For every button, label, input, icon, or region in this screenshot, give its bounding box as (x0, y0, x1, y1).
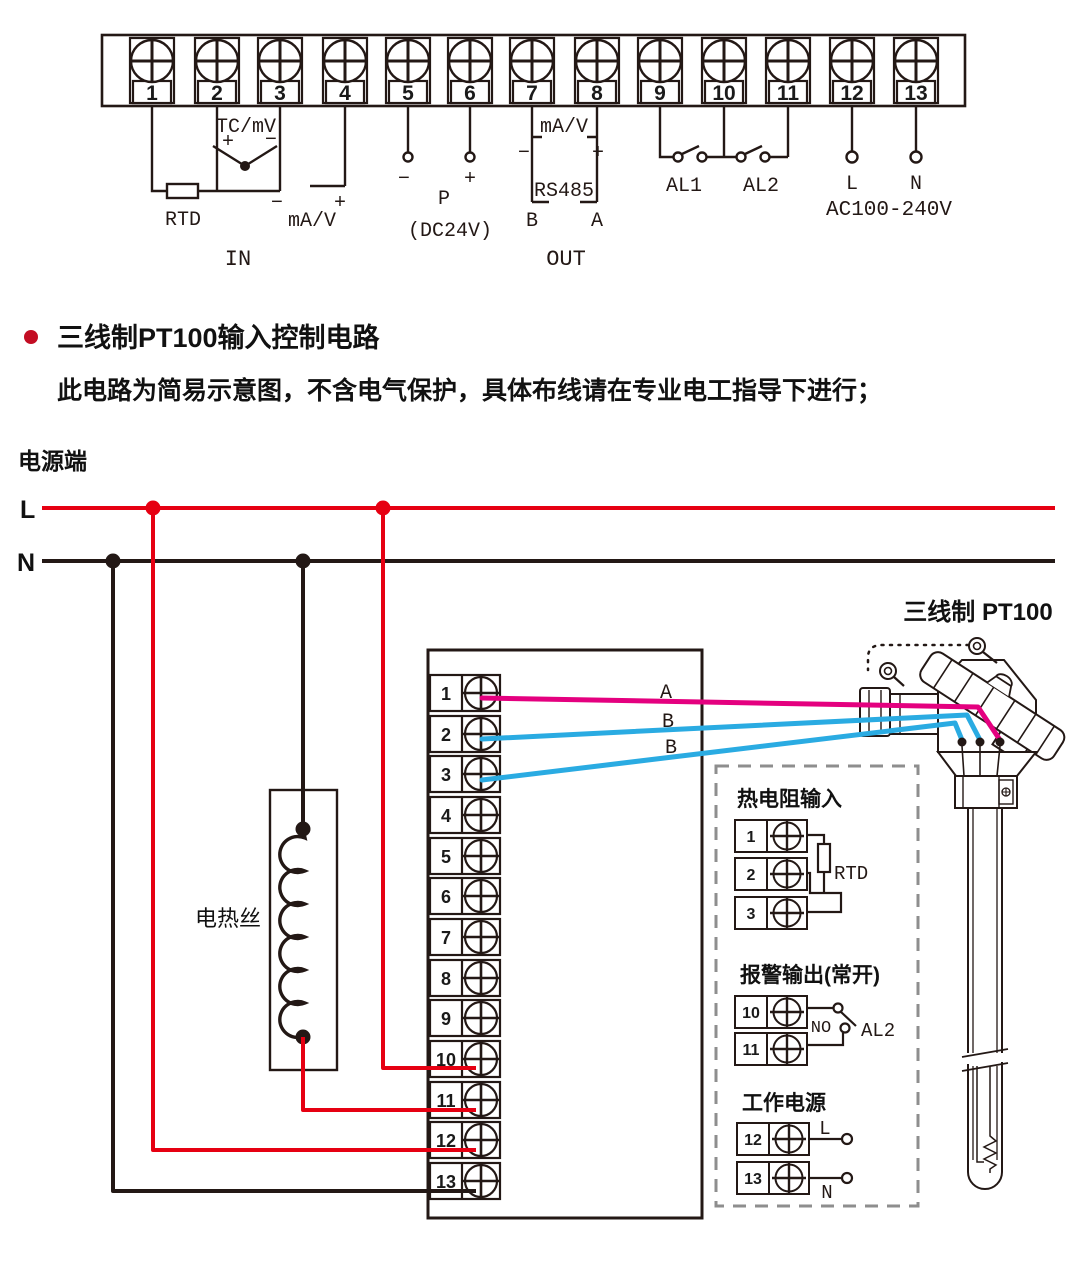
rs485-label: RS485 (534, 180, 594, 203)
rtd-section-title: 热电阻输入 (737, 787, 842, 811)
open-terminal-dot (466, 153, 475, 162)
open-terminal-dot (404, 153, 413, 162)
terminal-number: 4 (339, 82, 351, 105)
minus-sign: − (271, 192, 283, 215)
plus-sign: + (222, 131, 234, 154)
terminal-number: 6 (441, 887, 451, 907)
minus-sign: − (398, 168, 410, 191)
terminal-number: 9 (654, 82, 666, 105)
terminal-number: 13 (904, 82, 927, 105)
working-power-section: 工作电源 12 13 L N (737, 1091, 852, 1204)
ac-range-label: AC100-240V (826, 199, 952, 222)
open-terminal-dot (911, 152, 922, 163)
switch-contact (761, 153, 770, 162)
terminal-number: 6 (464, 82, 476, 105)
probe-element-zigzag (977, 1066, 996, 1173)
rtd-label: RTD (834, 863, 868, 885)
terminal-number: 2 (211, 82, 223, 105)
in-label: IN (225, 247, 251, 272)
ma-v-in-label: mA/V (288, 210, 336, 233)
sensor-neck-funnel (938, 752, 1036, 776)
terminal-number: 5 (402, 82, 414, 105)
terminal-detail-box: 热电阻输入 1 2 3 RTD 报警输出(常开) 10 11 NO AL2 (716, 766, 918, 1206)
terminal-number: 3 (441, 765, 451, 785)
section-note: 此电路为简易示意图，不含电气保护，具体布线请在专业电工指导下进行； (57, 376, 882, 405)
plus-sign: + (464, 168, 476, 191)
rs485-a-label: A (591, 210, 603, 233)
wire-b2-label: B (665, 737, 677, 760)
terminal-number: 1 (747, 829, 756, 846)
terminal-number: 5 (441, 847, 451, 867)
terminal-number: 8 (441, 969, 451, 989)
alarm-section-title: 报警输出(常开) (740, 963, 880, 987)
head-terminal-dot (958, 738, 967, 747)
sensor-neck (955, 776, 1017, 808)
minus-sign: − (265, 129, 277, 152)
power-rails: 电源端 L N (17, 448, 1055, 577)
terminal-number: 8 (591, 82, 603, 105)
terminal-number: 11 (743, 1042, 760, 1059)
terminal-number: 7 (526, 82, 538, 105)
dc24v-label: (DC24V) (408, 220, 492, 243)
sensor-probe-tube (962, 808, 1008, 1189)
rtd-input-section: 热电阻输入 1 2 3 RTD (735, 787, 868, 929)
pt100-sensor: 三线制 PT100 (860, 599, 1076, 1189)
rs485-b-label: B (526, 210, 538, 233)
n-wire-to-terminal-13 (113, 561, 476, 1191)
minus-sign: − (518, 142, 530, 165)
al2-label: AL2 (743, 175, 779, 198)
wiring-diagram: 1 2 3 4 5 6 7 8 9 10 11 12 13 (0, 0, 1080, 1286)
switch-contact (737, 153, 746, 162)
switch-contact (698, 153, 707, 162)
detail-l-label: L (819, 1118, 830, 1140)
section-title: 三线制PT100输入控制电路 (57, 322, 381, 353)
no-contact-label: NO (811, 1019, 831, 1038)
out-label: OUT (546, 247, 586, 272)
line-n-label: N (17, 549, 35, 577)
terminal-number: 10 (742, 1005, 760, 1022)
terminal-number: 10 (712, 82, 735, 105)
switch-contact (674, 153, 683, 162)
terminal-number: 11 (777, 82, 800, 105)
section-heading: 三线制PT100输入控制电路 此电路为简易示意图，不含电气保护，具体布线请在专业… (24, 322, 882, 405)
line-l-label: L (20, 496, 35, 524)
al1-label: AL1 (666, 175, 702, 198)
power-section-title: 工作电源 (742, 1091, 826, 1115)
power-terminal-label: 电源端 (18, 448, 87, 474)
power-wiring (113, 508, 476, 1191)
terminal-number: 2 (441, 725, 451, 745)
switch-blades (682, 146, 762, 154)
terminal-number: 13 (744, 1171, 762, 1188)
heater-label: 电热丝 (195, 906, 261, 931)
terminal-number: 1 (146, 82, 158, 105)
heater: 电热丝 (195, 561, 337, 1070)
top-annotation-labels: TC/mV + − RTD − mA/V + IN − + P (DC24V) … (165, 116, 952, 272)
terminal-number: 3 (747, 906, 756, 923)
alarm-output-section: 报警输出(常开) 10 11 NO AL2 (735, 963, 895, 1065)
rtd-resistor-symbol (167, 184, 198, 198)
n-label: N (910, 173, 922, 196)
al2-label: AL2 (861, 1020, 895, 1042)
terminal-number: 9 (441, 1009, 451, 1029)
plus-sign: + (334, 192, 346, 215)
open-terminal-dot (847, 152, 858, 163)
terminal-number: 4 (441, 806, 451, 826)
rtd-label: RTD (165, 209, 201, 232)
wire-b1-label: B (662, 711, 674, 734)
junction-dot (240, 161, 250, 171)
sensor-label: 三线制 PT100 (903, 599, 1052, 626)
terminal-number: 2 (747, 867, 756, 884)
plus-sign: + (592, 142, 604, 165)
heater-coil (280, 829, 305, 1038)
rtd-resistor-symbol (818, 844, 830, 872)
l-label: L (846, 173, 858, 196)
top-terminal-block: 1 2 3 4 5 6 7 8 9 10 11 12 13 (102, 35, 965, 272)
terminal-number: 1 (441, 684, 451, 704)
terminal-number: 3 (274, 82, 286, 105)
bullet-icon (24, 330, 38, 344)
ma-v-out-label: mA/V (540, 116, 588, 139)
terminal-number: 12 (744, 1132, 762, 1149)
head-terminal-dot (996, 738, 1005, 747)
p-label: P (438, 188, 450, 211)
detail-n-label: N (821, 1182, 832, 1204)
terminal-number: 7 (441, 928, 451, 948)
wire-a-label: A (660, 682, 672, 705)
terminal-number: 12 (840, 82, 863, 105)
coil-top-dot (296, 822, 311, 837)
head-terminal-dot (976, 738, 985, 747)
probe-rounded-tip (968, 1172, 1002, 1189)
